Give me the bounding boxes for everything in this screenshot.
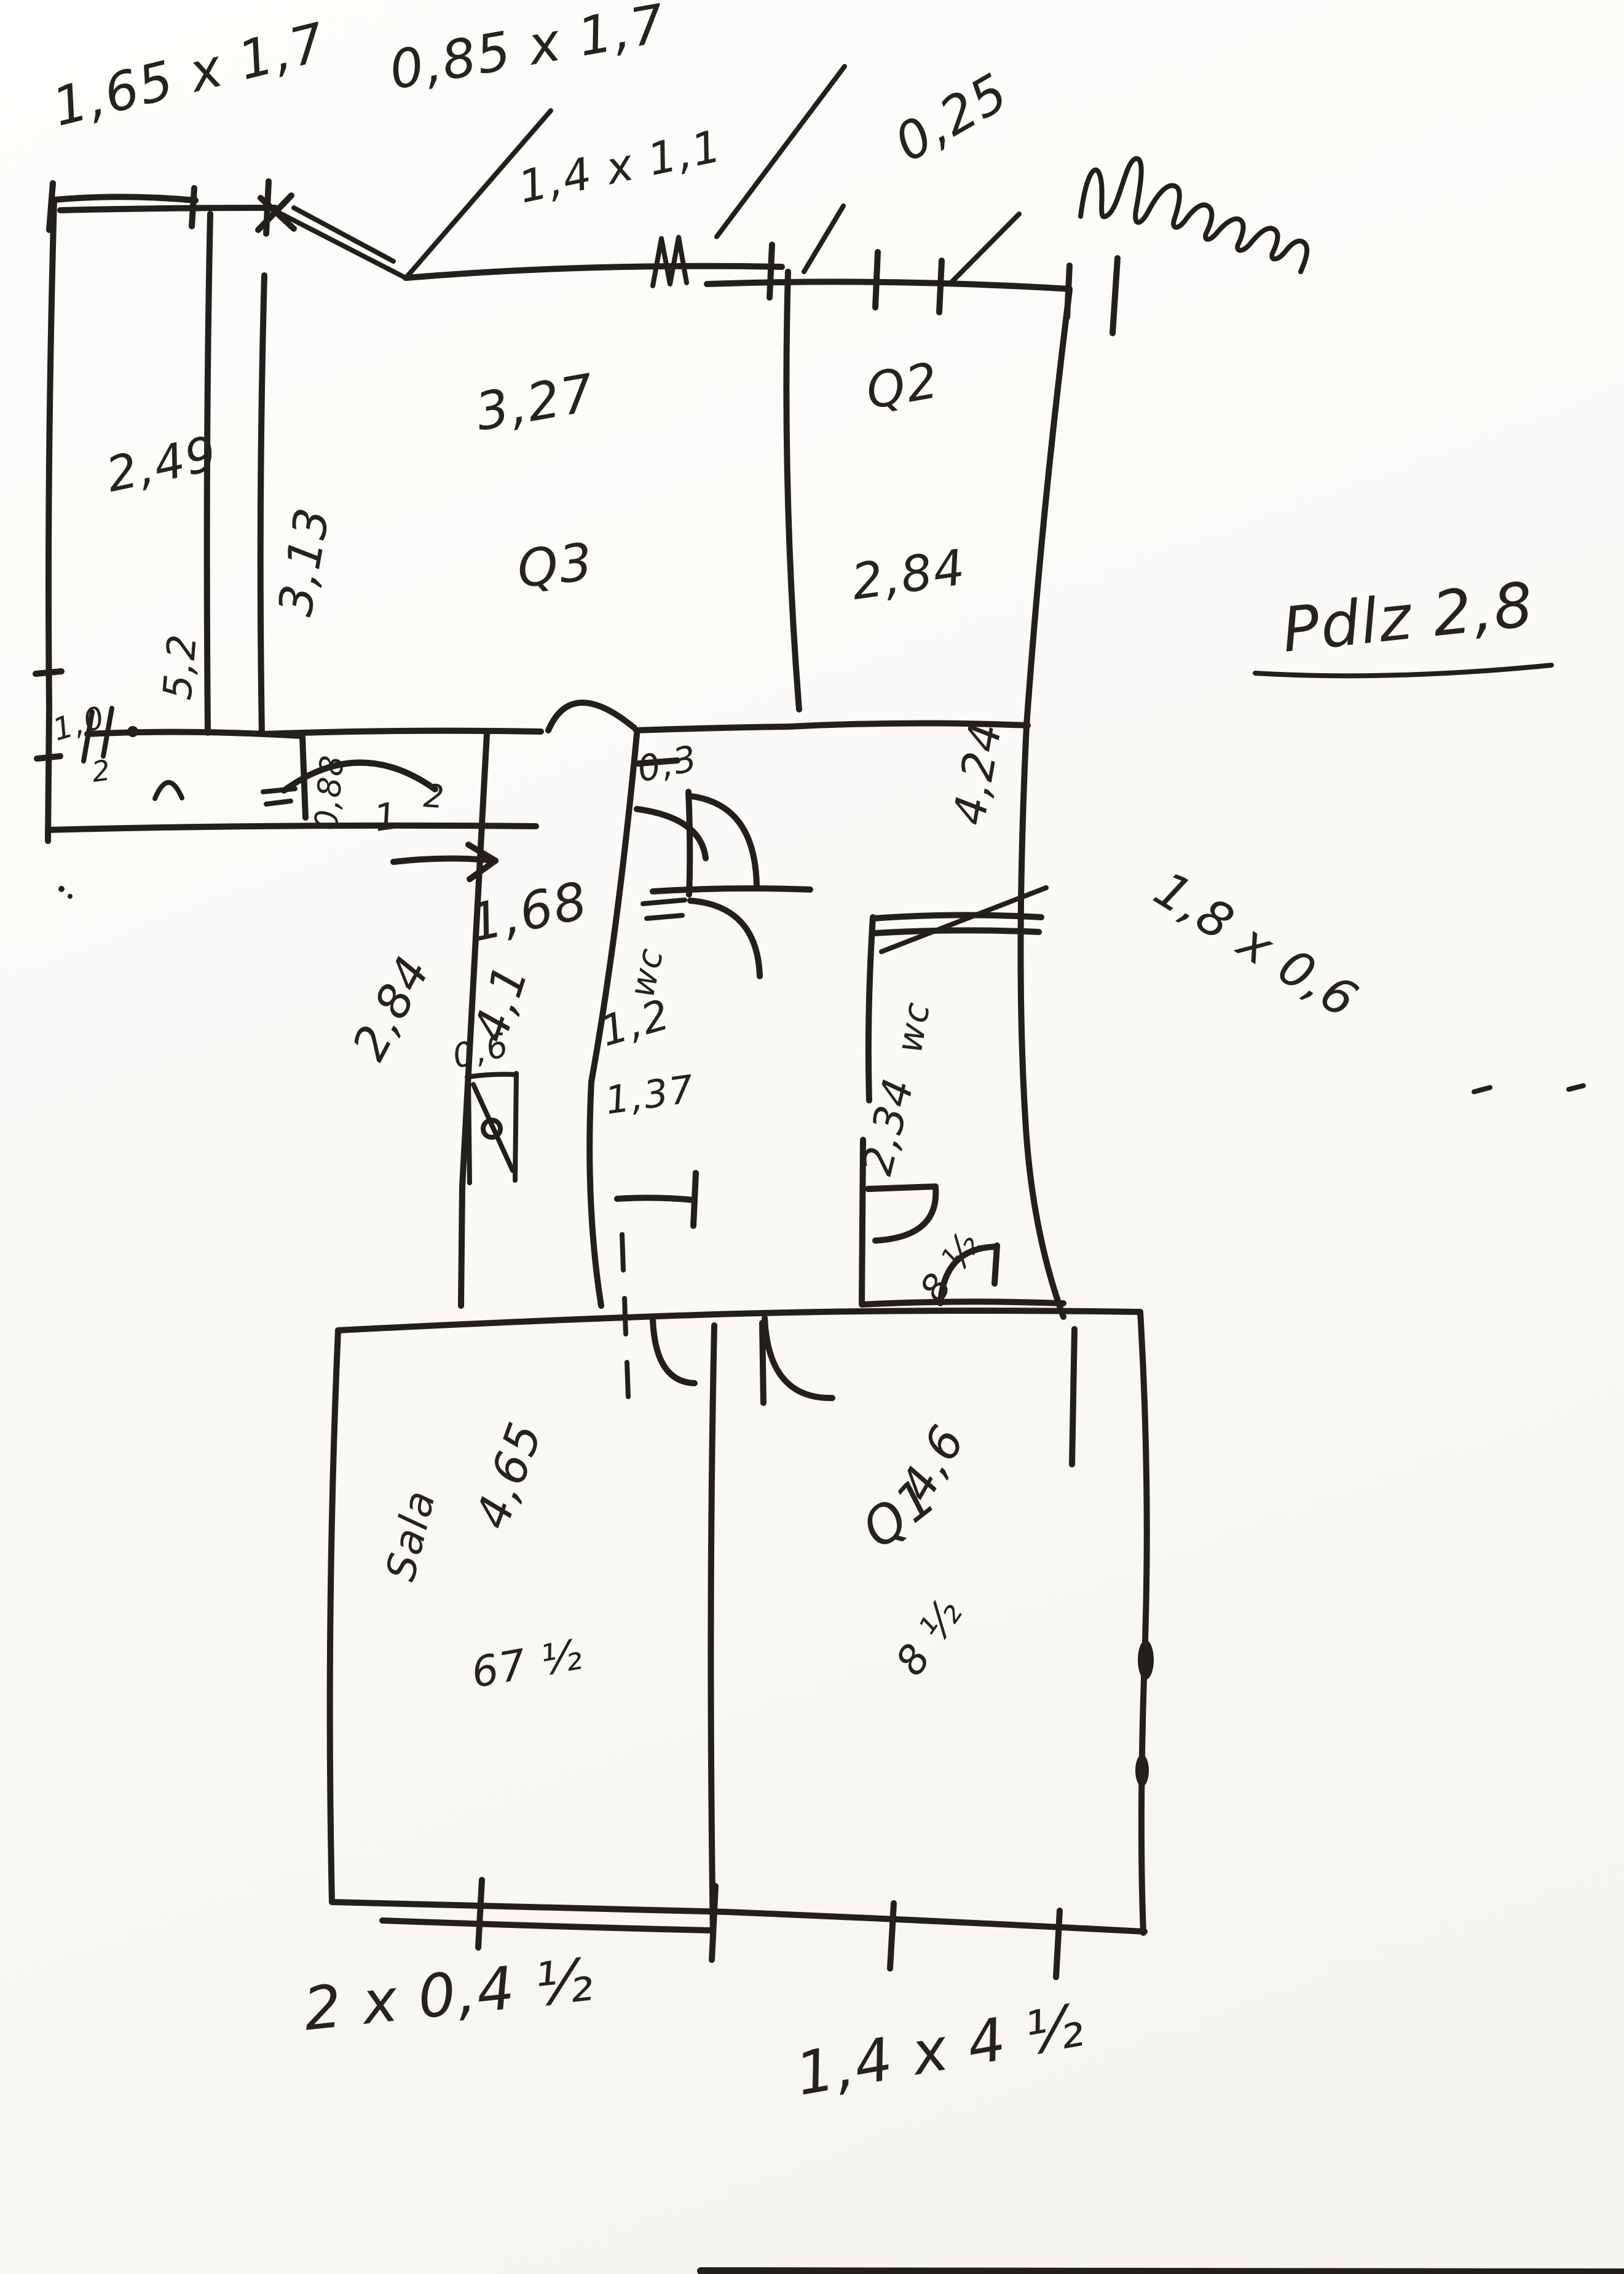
scanned-paper-sheet: 1,65 x 1,7 0,85 x 1,7 1,4 x 1,1 0,25 2,4… [0, 0, 1624, 2274]
double-tick [643, 900, 685, 904]
leader-line [804, 206, 843, 272]
wc-small-depth: 1,37 [602, 1066, 698, 1123]
entrance-arrow [393, 858, 495, 862]
dim-window-middle: 1,4 x 1,1 [514, 120, 727, 213]
ink-blot [1138, 1640, 1154, 1680]
door-arc [637, 809, 706, 858]
wall [869, 917, 873, 1100]
room-q3-left-dim: 3,13 [267, 503, 340, 620]
wall [60, 208, 275, 210]
scan-edge [701, 2271, 1624, 2272]
taper-line [278, 212, 406, 278]
window-hatch [653, 237, 687, 286]
room-q1-bottom-dim: 8 ½ [886, 1590, 972, 1684]
misc-marks [58, 66, 1624, 2272]
wall [653, 888, 810, 891]
wall [1020, 290, 1070, 1317]
tick [693, 1173, 696, 1226]
scribble-word [1081, 159, 1307, 272]
corridor-width: 1,68 [463, 870, 593, 953]
wc-small-label: wc [622, 944, 671, 1001]
dim-0-6: 0,6 [449, 1025, 513, 1076]
room-sala-bottom-dim: 67 ½ [468, 1630, 586, 1697]
leader-line [950, 214, 1019, 284]
dim-window-top-left: 1,65 x 1,7 [47, 12, 333, 139]
corridor-left-dim: 2,84 [341, 947, 441, 1068]
wall [333, 1902, 1145, 1932]
door-leaf [762, 1323, 763, 1403]
room-sala-name: Sala [377, 1485, 445, 1585]
wall [54, 197, 195, 200]
room-q3-name: Q3 [514, 532, 596, 599]
dim-0-3: 0,3 [634, 737, 701, 791]
door-arc [653, 1319, 695, 1383]
annotations: 1,65 x 1,7 0,85 x 1,7 1,4 x 1,1 0,25 2,4… [47, 0, 1537, 2109]
taper-line [294, 208, 393, 261]
window-double-line [382, 1921, 710, 1930]
wall [406, 266, 782, 278]
hall-dim-2: 2 [422, 778, 446, 816]
ink-dot [58, 886, 65, 892]
wall [338, 1311, 1140, 1330]
tick [770, 245, 772, 298]
wall [862, 1301, 1063, 1305]
alcove-dim-2: 2 [90, 753, 113, 789]
dashed-wall [627, 1362, 628, 1397]
closet [875, 1188, 936, 1241]
closet-diagonal [473, 1084, 513, 1171]
stray-stroke [1072, 1329, 1074, 1464]
wall [48, 200, 54, 841]
room-left-height: 5,2 [155, 632, 206, 702]
double-tick [266, 801, 291, 804]
wall [617, 1198, 693, 1200]
wall [636, 727, 788, 730]
double-tick [647, 915, 682, 918]
closet [467, 1075, 516, 1078]
door-arc [765, 1318, 832, 1398]
window-double-line [874, 930, 1039, 933]
tick [995, 1246, 997, 1284]
closet [468, 1076, 470, 1183]
room-q2-height: 4,24 [943, 718, 1012, 829]
tick [712, 1886, 715, 1960]
door-arc [690, 901, 760, 976]
window-double-line [873, 915, 1041, 918]
tick [37, 756, 60, 759]
leader-line [717, 66, 845, 237]
wc-big-label: wc [888, 998, 938, 1056]
room-q2-name: Q2 [862, 352, 943, 420]
wall [688, 792, 690, 894]
tick [875, 252, 878, 307]
dim-window-wc: 1,8 x 0,6 [1145, 860, 1368, 1029]
room-q2-width: 2,84 [848, 539, 969, 611]
note-ceiling-height: Pdlz 2,8 [1279, 569, 1537, 666]
door-arc [155, 783, 182, 799]
note-bottom-left: 2 x 0,4 ½ [301, 1945, 597, 2044]
room-sala-width: 4,65 [464, 1415, 553, 1536]
ink-dot [68, 894, 73, 899]
tick [36, 671, 61, 674]
closet [868, 1186, 936, 1189]
underline [1255, 665, 1551, 676]
wall [1140, 1312, 1147, 1933]
ink-blot [1135, 1755, 1149, 1786]
wall [262, 731, 541, 734]
door-arc [548, 703, 634, 730]
tick [890, 1903, 894, 1968]
dim-window-top-left-2: 0,85 x 1,7 [385, 0, 670, 102]
floor-plan-sketch: 1,65 x 1,7 0,85 x 1,7 1,4 x 1,1 0,25 2,4… [0, 0, 1624, 2274]
hall-dim-1: 1 [371, 794, 402, 840]
wall [786, 272, 799, 709]
dim-0-25: 0,25 [885, 61, 1019, 173]
wall [261, 275, 264, 734]
ink-dot [127, 726, 138, 737]
tick [1113, 258, 1117, 333]
wall [707, 282, 1070, 289]
small-dash [1474, 1088, 1490, 1092]
tick [192, 188, 194, 226]
wall [48, 826, 536, 830]
wc-door-dim: 8 ½ [912, 1224, 990, 1310]
tick [478, 1880, 482, 1948]
dashed-wall [622, 1234, 623, 1270]
hall-dim-088: 0,88 [308, 753, 352, 832]
wall [87, 732, 301, 736]
tick [1056, 1911, 1060, 1977]
small-dash [1569, 1086, 1583, 1089]
wall [330, 1330, 338, 1902]
alcove-dim-10: 1,0 [49, 699, 109, 748]
wall [711, 1325, 714, 1938]
wc-big-height: 2,34 [853, 1073, 924, 1180]
note-bottom-right: 1,4 x 4 ½ [791, 1991, 1089, 2109]
tick [939, 261, 942, 312]
closet [515, 1073, 516, 1180]
room-q3-width: 3,27 [471, 362, 599, 442]
